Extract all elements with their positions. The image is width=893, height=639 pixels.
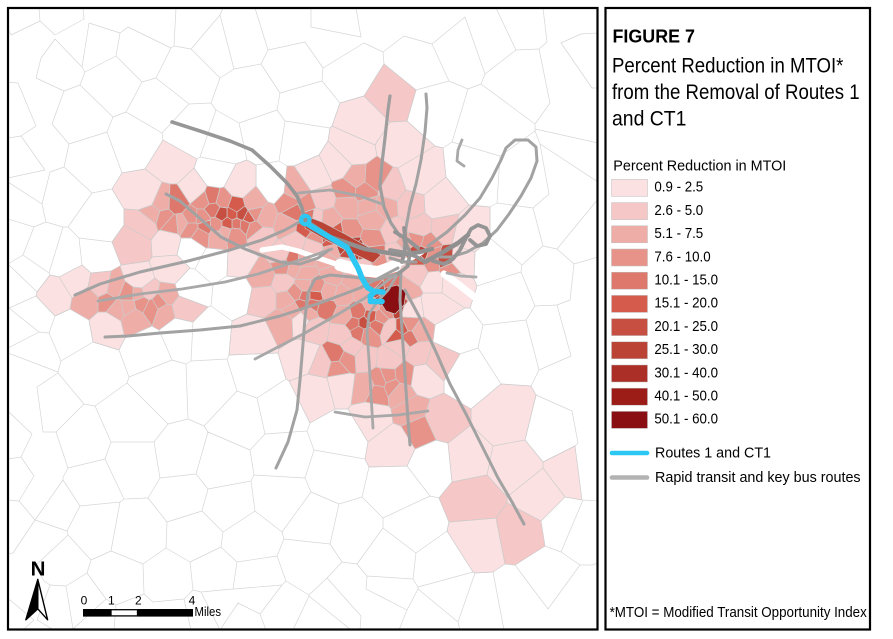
svg-text:FIGURE 7: FIGURE 7 (613, 27, 696, 47)
svg-text:20.1 - 25.0: 20.1 - 25.0 (654, 319, 718, 335)
svg-text:0: 0 (81, 594, 88, 608)
svg-text:Routes 1 and CT1: Routes 1 and CT1 (655, 446, 771, 462)
svg-text:and CT1: and CT1 (612, 106, 686, 130)
svg-text:Miles: Miles (195, 604, 222, 619)
svg-text:0.9 - 2.5: 0.9 - 2.5 (654, 180, 703, 196)
svg-text:7.6 - 10.0: 7.6 - 10.0 (654, 249, 710, 265)
svg-text:Rapid transit and key bus rout: Rapid transit and key bus routes (655, 470, 861, 486)
svg-text:5.1 - 7.5: 5.1 - 7.5 (654, 226, 703, 242)
svg-text:2.6 - 5.0: 2.6 - 5.0 (654, 203, 703, 219)
svg-text:10.1 - 15.0: 10.1 - 15.0 (654, 273, 718, 289)
svg-text:2: 2 (135, 594, 142, 608)
svg-text:1: 1 (108, 594, 115, 608)
svg-text:30.1 - 40.0: 30.1 - 40.0 (654, 365, 718, 381)
svg-text:Percent Reduction in MTOI: Percent Reduction in MTOI (613, 158, 786, 174)
svg-text:15.1 - 20.0: 15.1 - 20.0 (654, 296, 718, 312)
svg-text:25.1 - 30.0: 25.1 - 30.0 (654, 342, 718, 358)
svg-text:from the Removal of Routes 1: from the Removal of Routes 1 (612, 80, 860, 104)
svg-text:40.1 - 50.0: 40.1 - 50.0 (654, 389, 718, 405)
svg-text:Percent Reduction in MTOI*: Percent Reduction in MTOI* (612, 54, 844, 78)
svg-text:N: N (31, 558, 46, 581)
svg-text:*MTOI = Modified Transit Oppor: *MTOI = Modified Transit Opportunity Ind… (610, 605, 868, 621)
svg-text:50.1 - 60.0: 50.1 - 60.0 (654, 412, 718, 428)
